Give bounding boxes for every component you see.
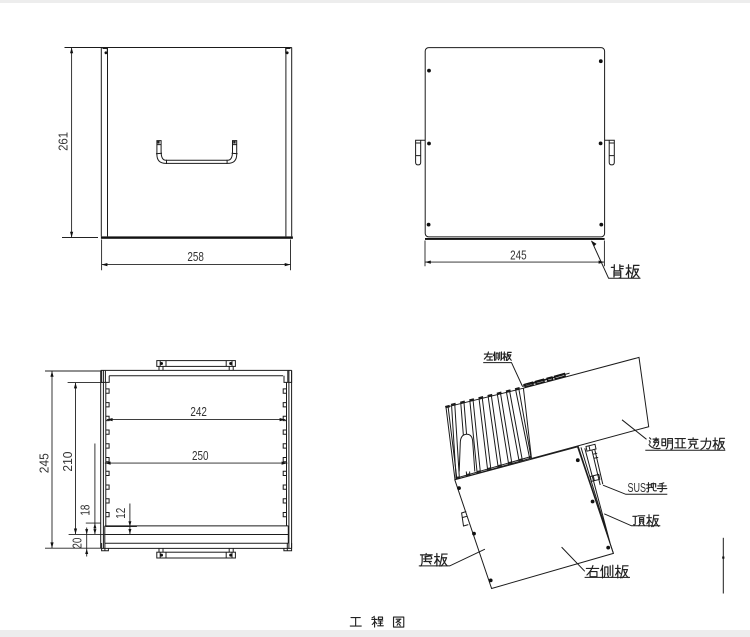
svg-text:245: 245 (510, 249, 527, 263)
svg-text:18: 18 (78, 505, 92, 516)
svg-text:261: 261 (56, 132, 70, 151)
svg-text:20: 20 (71, 538, 85, 549)
svg-text:210: 210 (61, 452, 75, 472)
svg-text:258: 258 (187, 250, 204, 264)
svg-text:242: 242 (190, 405, 207, 419)
svg-text:250: 250 (192, 449, 209, 463)
svg-text:SUS: SUS (628, 481, 647, 495)
svg-text:245: 245 (38, 453, 52, 473)
svg-text:12: 12 (114, 508, 128, 519)
